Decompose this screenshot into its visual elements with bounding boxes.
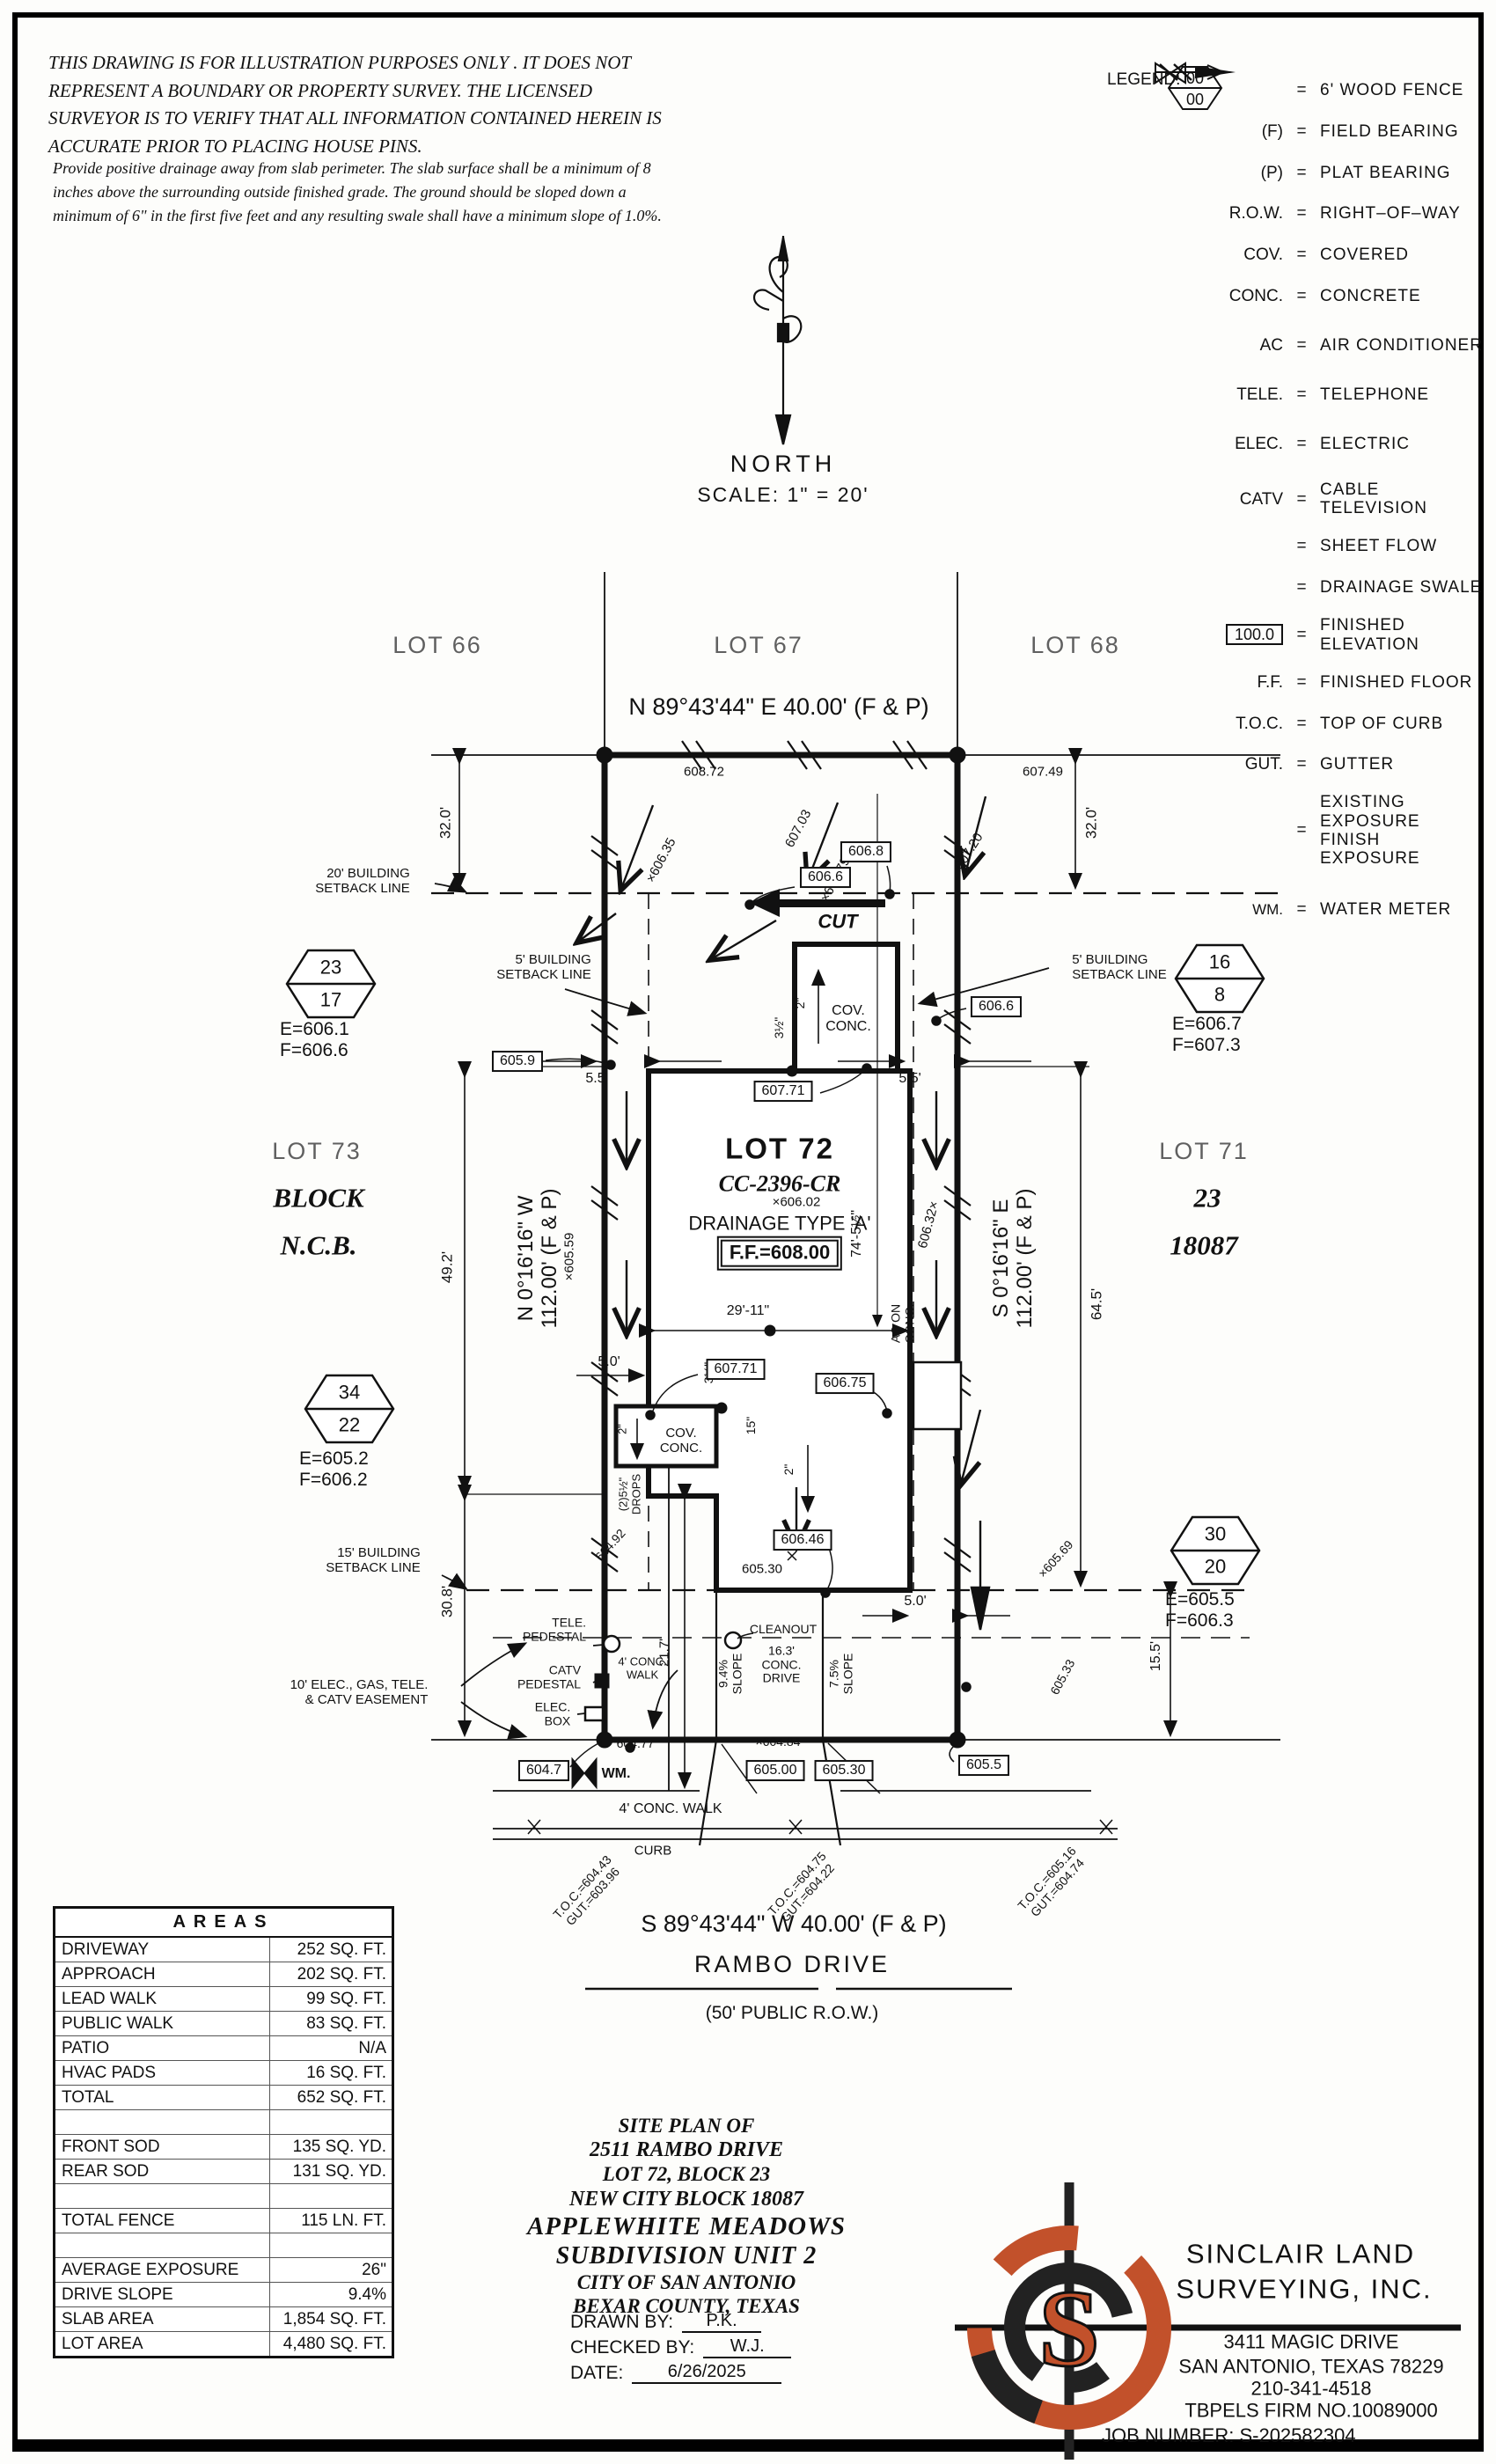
- date-value: 6/26/2025: [632, 2362, 781, 2384]
- legend-def: TOP OF CURB: [1320, 715, 1443, 733]
- row-value: 9.4%: [270, 2285, 392, 2305]
- curb-label: CURB: [634, 1844, 672, 1859]
- row-label: HVAC PADS: [55, 2061, 270, 2085]
- north-arrow-icon: [754, 236, 801, 444]
- legend-eq: =: [1283, 755, 1320, 774]
- legend-def: TELEPHONE: [1320, 385, 1429, 404]
- tele-pedestal-label: TELE. PEDESTAL: [523, 1616, 586, 1643]
- table-row: LOT AREA4,480 SQ. FT.: [55, 2332, 392, 2356]
- legend-def: DRAINAGE SWALE: [1320, 578, 1482, 597]
- legend-eq: =: [1283, 435, 1320, 453]
- legend-def: AIR CONDITIONER: [1320, 336, 1483, 355]
- dim-15-5: 15.5': [1148, 1641, 1164, 1671]
- table-row: FRONT SOD135 SQ. YD.: [55, 2135, 392, 2160]
- legend-eq: =: [1283, 626, 1320, 644]
- site-plan-sheet: S THIS DRAWING IS FOR ILLUSTRATION PURPO…: [0, 0, 1496, 2464]
- table-row: LEAD WALK99 SQ. FT.: [55, 1987, 392, 2012]
- legend-eq: =: [1283, 164, 1320, 182]
- legend-def: GUTTER: [1320, 755, 1394, 774]
- row-label: DRIVE SLOPE: [55, 2283, 270, 2306]
- row-label: SLAB AREA: [55, 2307, 270, 2331]
- wm-abbrev: WM.: [1252, 901, 1283, 918]
- row-label: DRIVEWAY: [55, 1938, 270, 1962]
- row-value: 652 SQ. FT.: [270, 2088, 392, 2108]
- elev-607-71-low-box: 607.71: [707, 1359, 766, 1380]
- row-value: 83 SQ. FT.: [270, 2014, 392, 2034]
- firm-tbpels: TBPELS FIRM NO.10089000: [1184, 2401, 1437, 2423]
- row-label: FRONT SOD: [55, 2135, 270, 2159]
- elev-606-75-box: 606.75: [816, 1373, 875, 1394]
- lot-72-plan-number: CC-2396-CR: [719, 1170, 841, 1196]
- wm-label: WM.: [602, 1766, 631, 1782]
- dim-64-5: 64.5': [1088, 1288, 1104, 1320]
- title-line: SITE PLAN OF: [440, 2114, 933, 2138]
- elev-604-7-box: 604.7: [518, 1760, 569, 1781]
- legend-def: CABLE TELEVISION: [1320, 480, 1483, 518]
- elev-604-77: 604.77: [617, 1737, 655, 1751]
- row-value: 131 SQ. YD.: [270, 2162, 392, 2182]
- hex-34-22-finish: F=606.2: [299, 1470, 368, 1491]
- ac-on-conc-label: AC ON CONC.: [889, 1303, 916, 1343]
- water-meter-icon: [572, 1758, 597, 1788]
- street-name-label: RAMBO DRIVE: [694, 1951, 890, 1977]
- table-row-blank: [55, 2110, 392, 2135]
- firm-phone: 210-341-4518: [1250, 2379, 1371, 2401]
- drive-slope-west-label: 9.4% SLOPE: [716, 1654, 744, 1695]
- setback-5-west-label: 5' BUILDING SETBACK LINE: [496, 953, 591, 983]
- walk-bottom-label: 4' CONC. WALK: [619, 1801, 722, 1817]
- hex-16-8-finish: F=607.3: [1172, 1035, 1241, 1056]
- row-value: N/A: [270, 2039, 392, 2058]
- hex-34-22-top: 34: [339, 1382, 360, 1404]
- hex-16-8-bottom: 8: [1214, 985, 1225, 1007]
- table-row: DRIVE SLOPE9.4%: [55, 2283, 392, 2307]
- north-bearing-label: N 89°43'44" E 40.00' (F & P): [628, 693, 928, 720]
- table-row: SLAB AREA1,854 SQ. FT.: [55, 2307, 392, 2332]
- elev-605-5-box: 605.5: [958, 1755, 1009, 1776]
- block-label: BLOCK: [273, 1184, 363, 1214]
- catv-abbrev: CATV: [1153, 490, 1283, 509]
- scale-label: SCALE: 1" = 20': [697, 484, 869, 507]
- easement-label: 10' ELEC., GAS, TELE. & CATV EASEMENT: [290, 1678, 429, 1708]
- dim-29-11: 29'-11": [727, 1303, 769, 1319]
- legend-def: PLAT BEARING: [1320, 164, 1451, 182]
- legend-def: 6' WOOD FENCE: [1320, 81, 1463, 99]
- hex-30-20-finish: F=606.3: [1165, 1610, 1234, 1632]
- finished-floor-label: F.F.=608.00: [717, 1236, 842, 1271]
- checked-by-label: CHECKED BY:: [570, 2337, 694, 2358]
- elev-607-71-top-box: 607.71: [754, 1081, 813, 1102]
- lot-72-title: LOT 72: [725, 1133, 834, 1166]
- row-label: [55, 2184, 270, 2208]
- lot-71-label: LOT 71: [1159, 1138, 1249, 1164]
- row-label: PUBLIC WALK: [55, 2012, 270, 2035]
- disclaimer-primary: THIS DRAWING IS FOR ILLUSTRATION PURPOSE…: [48, 49, 686, 160]
- row-value: 26": [270, 2261, 392, 2280]
- date-label: DATE:: [570, 2363, 623, 2384]
- row-value: 252 SQ. FT.: [270, 1940, 392, 1960]
- elev-607-49: 607.49: [1023, 766, 1063, 781]
- legend-def: SHEET FLOW: [1320, 537, 1437, 555]
- legend-def2: FINISH EXPOSURE: [1320, 831, 1420, 868]
- title-line: NEW CITY BLOCK 18087: [440, 2187, 933, 2211]
- legend-def: ELECTRIC: [1320, 435, 1410, 453]
- ncb-18087-label: 18087: [1170, 1231, 1238, 1262]
- row-value: 135 SQ. YD.: [270, 2138, 392, 2157]
- plat-bearing-symbol: (P): [1153, 164, 1283, 182]
- signature-block: DRAWN BY:P.K. CHECKED BY:W.J. DATE:6/26/…: [570, 2311, 791, 2387]
- elev-605-30-box: 605.30: [815, 1760, 874, 1781]
- drops-label: (2)5½" DROPS: [617, 1474, 642, 1514]
- west-bearing-label: N 0°16'16" W 112.00' (F & P): [515, 1189, 562, 1329]
- legend-def: RIGHT–OF–WAY: [1320, 204, 1461, 223]
- firm-address-line1: 3411 MAGIC DRIVE: [1224, 2332, 1399, 2354]
- table-row-blank: [55, 2233, 392, 2258]
- title-line: 2511 RAMBO DRIVE: [440, 2138, 933, 2162]
- legend-eq: =: [1283, 490, 1320, 509]
- row-label: [55, 2233, 270, 2257]
- setback-5-east-label: 5' BUILDING SETBACK LINE: [1072, 953, 1167, 983]
- table-row-blank: [55, 2184, 392, 2209]
- legend-def: EXISTING EXPOSURE: [1320, 793, 1420, 830]
- firm-name-line2: SURVEYING, INC.: [1176, 2275, 1432, 2306]
- lot-67-label: LOT 67: [714, 632, 803, 658]
- row-value: 202 SQ. FT.: [270, 1965, 392, 1984]
- table-row: PUBLIC WALK83 SQ. FT.: [55, 2012, 392, 2036]
- catv-pedestal-label: CATV PEDESTAL: [517, 1663, 581, 1690]
- hex-23-17-bottom: 17: [320, 990, 341, 1012]
- gut-abbrev: GUT.: [1153, 755, 1283, 774]
- hex-30-20-existing: E=605.5: [1165, 1589, 1235, 1610]
- table-row: AVERAGE EXPOSURE26": [55, 2258, 392, 2283]
- table-row: REAR SOD131 SQ. YD.: [55, 2160, 392, 2184]
- finish-exposure-value: 00: [1186, 91, 1204, 108]
- elev-608-72: 608.72: [684, 766, 724, 781]
- water-meter-legend-icon: [1153, 62, 1188, 84]
- areas-table: AREAS DRIVEWAY252 SQ. FT. APPROACH202 SQ…: [53, 1906, 394, 2358]
- ff-abbrev: F.F.: [1153, 673, 1283, 692]
- dim-32-east: 32.0': [1082, 807, 1099, 839]
- hex-16-8-existing: E=606.7: [1172, 1014, 1242, 1035]
- setback-20-label: 20' BUILDING SETBACK LINE: [315, 867, 410, 897]
- street-row-label: (50' PUBLIC R.O.W.): [706, 2003, 879, 2024]
- setback-15-label: 15' BUILDING SETBACK LINE: [326, 1546, 421, 1576]
- cov-abbrev: COV.: [1153, 246, 1283, 264]
- row-label: LEAD WALK: [55, 1987, 270, 2011]
- job-number: JOB NUMBER: S-202582304: [1102, 2425, 1356, 2447]
- elev-606-8-box: 606.8: [840, 841, 891, 862]
- north-label: NORTH: [730, 451, 837, 477]
- legend-eq: =: [1283, 204, 1320, 223]
- dim-49-2: 49.2': [438, 1251, 455, 1283]
- dim-3-5-top: 3½": [773, 1017, 787, 1038]
- east-bearing-label: S 0°16'16" E 112.00' (F & P): [990, 1189, 1038, 1329]
- firm-address-line2: SAN ANTONIO, TEXAS 78229: [1178, 2357, 1443, 2379]
- field-bearing-symbol: (F): [1153, 122, 1283, 141]
- table-row: TOTAL FENCE115 LN. FT.: [55, 2209, 392, 2233]
- dim-5-0-west: 5.0': [598, 1354, 620, 1370]
- hex-23-17-finish: F=606.6: [280, 1040, 348, 1061]
- row-value: 1,854 SQ. FT.: [270, 2310, 392, 2329]
- firm-name-line1: SINCLAIR LAND: [1186, 2240, 1415, 2270]
- legend-eq: =: [1283, 578, 1320, 597]
- table-row: TOTAL652 SQ. FT.: [55, 2086, 392, 2110]
- dim-5-5-west: 5.5': [585, 1071, 607, 1087]
- dim-2-porch: 2": [617, 1424, 630, 1434]
- toc-abbrev: T.O.C.: [1153, 715, 1283, 733]
- spot-elevation-606-02: ×606.02: [773, 1196, 821, 1211]
- legend-def: CONCRETE: [1320, 287, 1421, 305]
- row-label: AVERAGE EXPOSURE: [55, 2258, 270, 2282]
- row-abbrev: R.O.W.: [1153, 204, 1283, 223]
- dim-30-8: 30.8': [438, 1586, 455, 1617]
- ncb-label: N.C.B.: [281, 1231, 357, 1262]
- dim-5-0-east: 5.0': [904, 1594, 926, 1610]
- dim-5-5-east: 5.5': [898, 1071, 920, 1087]
- row-label: TOTAL FENCE: [55, 2209, 270, 2233]
- elev-606-6-east-box: 606.6: [971, 996, 1022, 1017]
- drawn-by-label: DRAWN BY:: [570, 2312, 673, 2333]
- elev-604-84: ×604.84: [756, 1735, 801, 1749]
- dim-21-7: 21.7': [658, 1639, 673, 1667]
- elev-605-30-spot: 605.30: [742, 1563, 782, 1578]
- title-line: LOT 72, BLOCK 23: [440, 2162, 933, 2186]
- elec-abbrev: ELEC.: [1153, 435, 1283, 453]
- hex-23-17-top: 23: [320, 957, 341, 979]
- dim-32-west: 32.0': [436, 807, 453, 839]
- drawn-by-value: P.K.: [682, 2311, 761, 2333]
- cleanout-label: CLEANOUT: [750, 1623, 817, 1637]
- block-23-label: 23: [1194, 1184, 1221, 1214]
- firm-logo-letter: S: [1038, 2269, 1100, 2390]
- legend-eq: =: [1283, 715, 1320, 733]
- drainage-type-label: DRAINAGE TYPE 'A': [688, 1214, 870, 1236]
- elev-605-59: ×605.59: [563, 1233, 578, 1281]
- lot-66-label: LOT 66: [392, 632, 482, 658]
- areas-table-title: AREAS: [55, 1909, 392, 1938]
- lot-68-label: LOT 68: [1030, 632, 1120, 658]
- drive-slope-east-label: 7.5% SLOPE: [827, 1654, 854, 1695]
- hex-34-22-existing: E=605.2: [299, 1448, 369, 1470]
- row-label: TOTAL: [55, 2086, 270, 2109]
- lot-73-label: LOT 73: [272, 1138, 362, 1164]
- table-row: DRIVEWAY252 SQ. FT.: [55, 1938, 392, 1962]
- legend-def: FINISHED FLOOR: [1320, 673, 1472, 692]
- legend-def: FINISHED ELEVATION: [1320, 616, 1483, 654]
- title-line: CITY OF SAN ANTONIO: [440, 2270, 933, 2294]
- row-value: 115 LN. FT.: [270, 2211, 392, 2231]
- conc-abbrev: CONC.: [1153, 287, 1283, 305]
- row-label: APPROACH: [55, 1962, 270, 1986]
- dim-2-mid: 2": [782, 1464, 796, 1476]
- legend-eq: =: [1283, 673, 1320, 692]
- dim-74-5: 74'-5½": [849, 1210, 865, 1258]
- cov-conc-top-label: COV. CONC.: [825, 1003, 871, 1035]
- hex-34-22-bottom: 22: [339, 1415, 360, 1437]
- cut-label: CUT: [818, 912, 857, 934]
- hex-30-20-top: 30: [1205, 1524, 1226, 1546]
- row-label: [55, 2110, 270, 2134]
- title-line: SUBDIVISION UNIT 2: [440, 2241, 933, 2270]
- drainage-swale-arrow-icon: [972, 1588, 989, 1630]
- row-label: LOT AREA: [55, 2332, 270, 2356]
- legend: = 6' WOOD FENCE (F)=FIELD BEARING (P)=PL…: [1153, 62, 1483, 950]
- legend-eq: =: [1283, 336, 1320, 355]
- table-row: APPROACH202 SQ. FT.: [55, 1962, 392, 1987]
- checked-by-value: W.J.: [703, 2336, 791, 2358]
- dim-15in: 15": [744, 1417, 759, 1435]
- elev-606-46-box: 606.46: [774, 1529, 832, 1551]
- legend-def: FIELD BEARING: [1320, 122, 1459, 141]
- hex-16-8-top: 16: [1209, 952, 1230, 974]
- legend-eq: =: [1283, 246, 1320, 264]
- legend-eq: =: [1283, 385, 1320, 404]
- row-label: PATIO: [55, 2036, 270, 2060]
- legend-eq: =: [1283, 122, 1320, 141]
- legend-eq: =: [1283, 81, 1320, 99]
- elev-605-9-box: 605.9: [492, 1051, 543, 1072]
- legend-eq: =: [1283, 821, 1320, 840]
- title-block: SITE PLAN OF 2511 RAMBO DRIVE LOT 72, BL…: [440, 2114, 933, 2318]
- drive-size-label: 16.3' CONC. DRIVE: [761, 1644, 801, 1685]
- row-value: 16 SQ. FT.: [270, 2064, 392, 2083]
- row-value: 4,480 SQ. FT.: [270, 2335, 392, 2354]
- title-line: APPLEWHITE MEADOWS: [440, 2211, 933, 2241]
- legend-eq: =: [1283, 537, 1320, 555]
- table-row: PATION/A: [55, 2036, 392, 2061]
- utility-symbols: [572, 1636, 620, 1788]
- ac-abbrev: AC: [1153, 336, 1283, 355]
- legend-eq: =: [1283, 287, 1320, 305]
- elev-606-6-cut-box: 606.6: [800, 867, 851, 888]
- hex-23-17-existing: E=606.1: [280, 1019, 349, 1040]
- row-value: 99 SQ. FT.: [270, 1990, 392, 2009]
- finished-elevation-symbol: 100.0: [1226, 624, 1283, 645]
- legend-def: COVERED: [1320, 246, 1409, 264]
- legend-eq: =: [1283, 900, 1320, 919]
- cov-conc-bottom-label: COV. CONC.: [660, 1426, 702, 1456]
- table-row: HVAC PADS16 SQ. FT.: [55, 2061, 392, 2086]
- hex-30-20-bottom: 20: [1205, 1557, 1226, 1579]
- disclaimer-secondary: Provide positive drainage away from slab…: [53, 157, 686, 228]
- dim-2-top: 2": [794, 998, 808, 1009]
- elec-box-label: ELEC. BOX: [535, 1700, 570, 1727]
- row-label: REAR SOD: [55, 2160, 270, 2183]
- legend-def: WATER METER: [1320, 900, 1451, 919]
- tele-abbrev: TELE.: [1153, 385, 1283, 404]
- elev-605-00-box: 605.00: [746, 1760, 805, 1781]
- existing-exposure-value: 00: [1186, 70, 1204, 87]
